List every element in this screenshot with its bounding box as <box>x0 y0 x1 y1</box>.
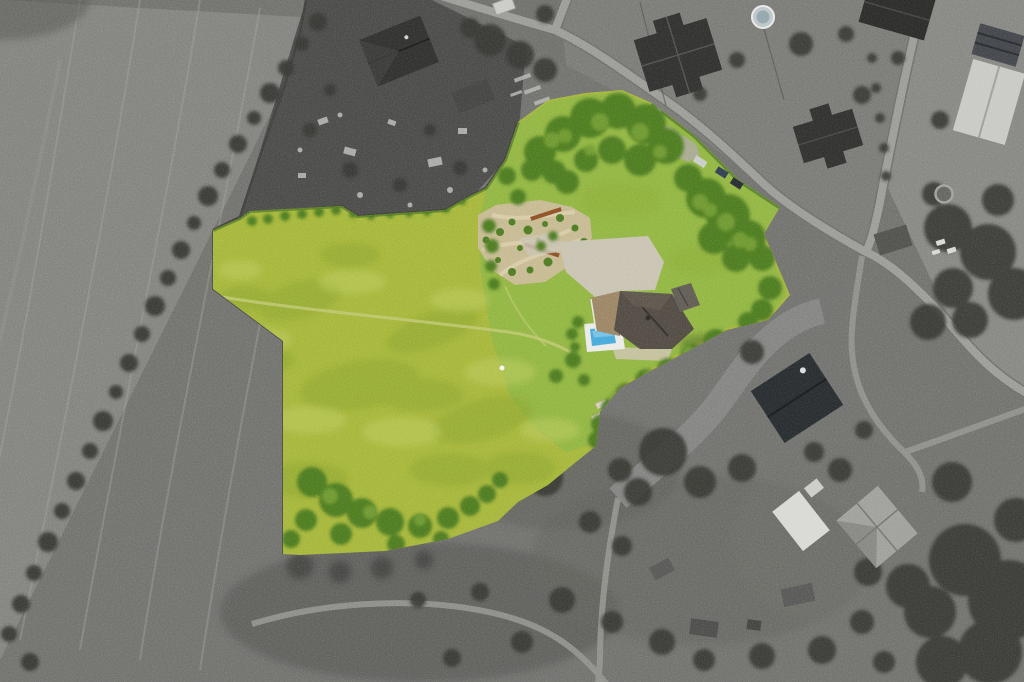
aerial-photo <box>0 0 1024 682</box>
aerial-photo-canvas <box>0 0 1024 682</box>
film-grain <box>0 0 1024 682</box>
